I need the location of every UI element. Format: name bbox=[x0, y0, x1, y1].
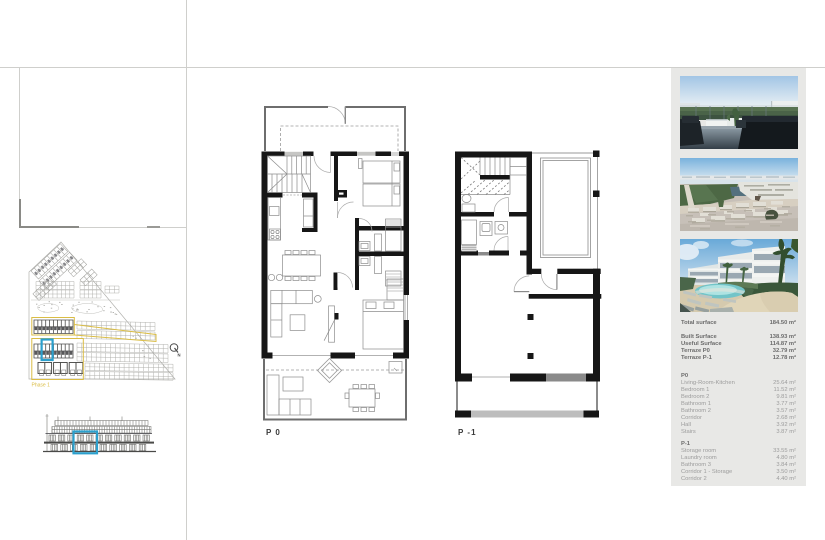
svg-text:N: N bbox=[178, 353, 181, 358]
svg-text:Phase 1: Phase 1 bbox=[32, 383, 51, 389]
